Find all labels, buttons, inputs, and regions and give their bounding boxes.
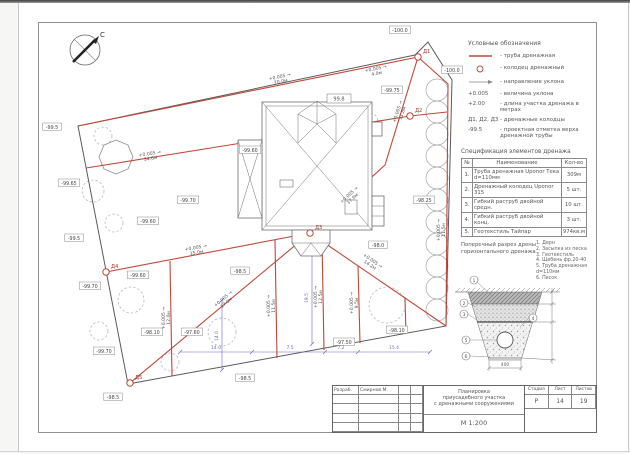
dimension-value: 14.0 (211, 345, 221, 351)
callout-number: 5 (465, 338, 468, 344)
elevation-label: -97.60 (184, 330, 199, 336)
spec-panel: Спецификация элементов дренажа № Наимено… (461, 149, 589, 237)
north-label: С (100, 31, 105, 39)
design-mark-symbol: -99.5 (468, 127, 500, 133)
drain-well-symbol (468, 65, 500, 75)
slope-length-label: +0.005 →4.0м (364, 64, 388, 79)
legend-item-well: - колодец дренажный (468, 65, 586, 75)
hedge-bush (426, 123, 448, 145)
slope-length-label: +0.005 →11.5м (436, 219, 447, 241)
elevation-label: -98.0 (372, 243, 384, 249)
callout-number: 3 (463, 312, 466, 318)
elevation-label: -99.70 (82, 284, 97, 290)
dimension-value: 19.5 (304, 293, 310, 303)
elevation-label: -98.25 (416, 198, 431, 204)
stage-value: Р (525, 395, 549, 408)
drainage-well (407, 113, 413, 119)
elevation-label: -98.10 (144, 330, 159, 336)
elevation-label: -99.70 (96, 349, 111, 355)
elevation-label: -100.0 (392, 28, 407, 34)
drawing-scale: М 1:200 (424, 415, 524, 432)
callout-number: 6 (465, 354, 468, 360)
spec-row: 5. Геотекстиль Тайпар 974кв.м (462, 228, 587, 237)
spec-row: 2. Дренажный колодец Uponor 315 5 шт. (462, 183, 587, 198)
spec-row: 1. Труба дренажная Uponor Тека d=110мм 3… (462, 168, 587, 183)
spec-row: 4. Гибкий раструб двойной конц. 3 шт. (462, 213, 587, 228)
callout-number: 4 (532, 316, 535, 322)
sheet-value: 14 (549, 395, 573, 408)
house-elevation-label: 99.8 (333, 97, 344, 103)
elevation-label: -99.60 (140, 219, 155, 225)
title-block-stage: Стадия Лист Листов Р 14 19 (525, 386, 596, 432)
spec-row: 3. Гибкий раструб двойной средн. 10 шт. (462, 198, 587, 213)
elevation-label: -98.10 (389, 328, 404, 334)
dimension-value: 7.2 (338, 345, 345, 351)
slope-length-label: +0.005 →11.5м (266, 295, 277, 317)
legend-item-slope-direction: - направление уклона (468, 79, 586, 87)
drain-pipe-symbol (468, 53, 500, 61)
slope-length-label: +0.005 →17.0м (213, 290, 237, 313)
dimension-value: 7.5 (287, 345, 294, 351)
sheet-header: Лист (549, 386, 573, 394)
elevation-label: -100.0 (444, 68, 459, 74)
drainage-well (127, 380, 133, 386)
sheets-header: Листов (572, 386, 596, 394)
elevation-label: -99.5 (68, 236, 80, 242)
elevation-label: -98.5 (234, 269, 246, 275)
dimension-value: 14.0 (214, 331, 220, 341)
drainage-well (103, 269, 109, 275)
section-bottom-dim: 400 (501, 362, 510, 368)
well-label: Д4 (111, 264, 119, 270)
title-block: Разраб. Смирнов М. Планировка приусадебн… (332, 385, 597, 433)
legend-panel: Условные обозначения - труба дренажная -… (468, 40, 586, 143)
project-name: Планировка приусадебного участка с дрена… (424, 386, 524, 415)
elevation-label: -99.5 (46, 125, 58, 131)
legend-title: Условные обозначения (468, 40, 586, 47)
gazebo-octagon (99, 140, 133, 174)
sheets-value: 19 (572, 395, 596, 408)
elevation-label: -99.65 (61, 181, 76, 187)
section-title: Поперечный разрез дрены горизонтального … (461, 242, 539, 255)
elevation-label: -99.60 (130, 273, 145, 279)
well-label: Д1 (423, 49, 430, 55)
legend-item-run-length: +2.00 - длина участка дренажа в метрах (468, 101, 586, 113)
slope-length-label: +0.005 →15.0м (184, 243, 208, 258)
hedge-bush (426, 145, 448, 167)
hedge-bush (426, 299, 448, 321)
spec-title: Спецификация элементов дренажа (461, 149, 589, 155)
north-arrow: С (70, 31, 105, 65)
callout-number: 2 (463, 301, 466, 307)
callout-number: 1 (473, 278, 476, 284)
drainage-well (415, 54, 421, 60)
hedge-bush (426, 167, 448, 189)
slope-length-label: +0.005 →11.8м (392, 100, 409, 125)
elevation-label: -98.5 (239, 376, 251, 382)
elevation-label: -99.70 (180, 198, 195, 204)
well-label: Д5 (135, 375, 142, 381)
dimension-value: 15.4 (389, 345, 399, 351)
elevation-label: -99.75 (384, 88, 399, 94)
hedge-bush (426, 79, 448, 101)
run-length-symbol: +2.00 (468, 101, 500, 107)
legend-item-pipe: - труба дренажная (468, 53, 586, 61)
legend-item-slope-value: +0.005 - величина уклона (468, 91, 586, 97)
drain-pipe-section (497, 332, 513, 348)
spec-table: № Наименование Кол-во 1. Труба дренажная… (461, 158, 587, 237)
trench-cross-section: 400 123456 (455, 276, 560, 371)
title-block-project: Планировка приусадебного участка с дрена… (424, 386, 525, 432)
section-notes: 1. Дерн 2. Засыпка из песка 3. Геотексти… (536, 241, 596, 282)
legend-item-design-mark: -99.5 - проектная отметка верха дренажно… (468, 127, 586, 139)
hedge-bush (426, 277, 448, 299)
well-label: Д2 (415, 108, 422, 114)
dimension-values: 14.07.57.215.419.514.0 (211, 293, 399, 351)
stage-header: Стадия (525, 386, 549, 394)
slope-value-symbol: +0.005 (468, 91, 500, 97)
spec-header-row: № Наименование Кол-во (462, 159, 587, 168)
elevation-label: -99.60 (242, 148, 257, 154)
elevation-label: -98.5 (107, 395, 119, 401)
elevation-label: -97.50 (336, 340, 351, 346)
slope-length-label: +0.005 →14.2м (359, 252, 384, 274)
hedge-bush (426, 255, 448, 277)
title-block-signatures: Разраб. Смирнов М. (333, 386, 424, 432)
slope-arrow-symbol (468, 79, 500, 87)
well-ids-symbol: Д1, Д2, Д3 (468, 117, 500, 123)
legend-item-well-ids: Д1, Д2, Д3 - дренажные колодцы (468, 117, 586, 123)
drainage-well (307, 230, 313, 236)
well-label: Д3 (315, 225, 322, 231)
